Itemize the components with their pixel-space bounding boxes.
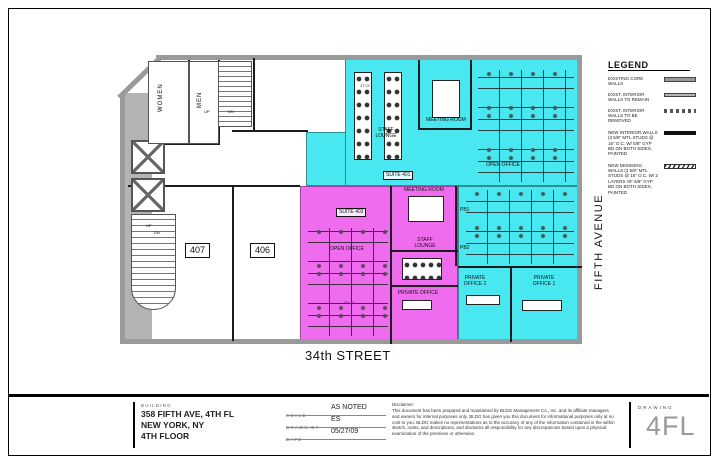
address-line-2: NEW YORK, NY xyxy=(141,420,234,431)
label-pink-meeting-room: MEETING ROOM xyxy=(404,188,444,194)
desk-bank-cyan-bottom xyxy=(466,190,574,264)
partition-corridor-top xyxy=(232,130,308,132)
legend-item-label: EXIST. INTERIOR WALLS TO REMAIN xyxy=(608,92,658,103)
label-suite-401: SUITE 401 xyxy=(383,171,413,180)
disclaimer: Disclaimer: This document has been prepa… xyxy=(392,402,617,437)
legend-title: LEGEND xyxy=(608,60,690,71)
partition-pb xyxy=(455,186,457,266)
label-women: WOMEN xyxy=(158,72,165,124)
label-cyan-staff-lounge: STAFF LOUNGE xyxy=(372,128,400,140)
label-room-406: 406 xyxy=(250,243,275,258)
desk-private-office-1 xyxy=(522,300,562,311)
drawing-number: 4FL xyxy=(646,411,696,442)
partition-stair-right xyxy=(253,58,255,132)
label-pb2: PB2 xyxy=(460,246,469,252)
legend-swatch-new-demising xyxy=(664,164,696,169)
label-cyan-open-office: OPEN OFFICE xyxy=(486,163,516,169)
title-block: BUILDING 358 FIFTH AVE, 4TH FL NEW YORK,… xyxy=(0,398,719,454)
partition-cyan-meeting-btm xyxy=(418,128,472,130)
table-cyan-meeting xyxy=(432,80,460,118)
building-address: 358 FIFTH AVE, 4TH FL NEW YORK, NY 4TH F… xyxy=(141,409,234,442)
building-label: BUILDING xyxy=(141,403,172,408)
partition-pink-h1 xyxy=(390,250,458,252)
label-dn-curved: DN xyxy=(154,231,160,236)
legend-item: EXISTING CORE WALLS xyxy=(608,76,696,87)
wall-right xyxy=(577,55,582,344)
legend-item: EXIST. INTERIOR WALLS TO REMAIN xyxy=(608,92,696,103)
title-block-bar-left xyxy=(133,402,135,448)
scale-section: SCALE AS NOTED DRAWN BY ES DATE 05/27/09 xyxy=(286,404,386,440)
label-dn-top: DN xyxy=(228,110,234,115)
label-room-407: 407 xyxy=(185,243,210,258)
label-private-office-1: PRIVATE OFFICE 1 xyxy=(528,276,560,288)
partition-pink-vert xyxy=(390,186,392,344)
table-pink-lounge xyxy=(402,258,442,280)
street-label-fifth-avenue: FIFTH AVENUE xyxy=(593,150,605,290)
street-label-34th: 34th STREET xyxy=(305,348,391,363)
restroom-women xyxy=(148,61,189,144)
drawing-label: DRAWING xyxy=(638,405,674,410)
drawn-by-value: ES xyxy=(331,416,340,423)
table-cyan-lounge-2 xyxy=(384,72,402,160)
address-line-3: 4TH FLOOR xyxy=(141,431,234,442)
label-up-top: UP xyxy=(204,110,210,115)
label-pink-staff-lounge: STAFF LOUNGE xyxy=(412,238,438,250)
desk-bank-pink xyxy=(308,228,388,336)
suite-401-zone-entry xyxy=(306,132,346,186)
dim-open-office: 22'-4" xyxy=(344,300,354,305)
partition-pink-h2 xyxy=(390,285,458,287)
elevator-1 xyxy=(131,140,165,174)
label-suite-403: SUITE 403 xyxy=(336,208,366,217)
title-block-divider xyxy=(9,394,709,397)
legend-item-label: NEW DEMISING WALLS (3 5/8" MTL STUDS @ 1… xyxy=(608,163,658,195)
desk-private-office-pink xyxy=(402,300,432,310)
label-up-curved: UP xyxy=(146,224,152,229)
label-pb1: PB1 xyxy=(460,208,469,214)
elevator-2 xyxy=(131,178,165,212)
title-block-bar-right xyxy=(629,402,631,448)
partition-407-406 xyxy=(232,186,234,341)
label-cyan-meeting-room: MEETING ROOM xyxy=(424,118,468,124)
wall-left xyxy=(120,93,125,344)
legend-item: NEW DEMISING WALLS (3 5/8" MTL STUDS @ 1… xyxy=(608,163,696,195)
legend-item-label: EXISTING CORE WALLS xyxy=(608,76,658,87)
legend-swatch-walls-removed xyxy=(664,109,696,113)
table-pink-meeting xyxy=(408,196,444,222)
legend-item-label: NEW INTERIOR WALLS (3 5/8" MTL STUDS @ 1… xyxy=(608,130,658,157)
legend-item: EXIST. INTERIOR WALLS TO BE REMOVED xyxy=(608,108,696,124)
desk-private-office-2 xyxy=(466,295,500,305)
address-line-1: 358 FIFTH AVE, 4TH FL xyxy=(141,409,234,420)
legend-swatch-existing-core xyxy=(664,77,696,82)
partition-cyan-lounge xyxy=(418,60,420,130)
partition-cyan-meeting xyxy=(470,60,472,130)
date-value: 05/27/09 xyxy=(331,428,358,435)
label-private-office-2: PRIVATE OFFICE 2 xyxy=(460,276,490,288)
label-pink-private-office: PRIVATE OFFICE xyxy=(396,291,440,297)
partition-cyan-po-top xyxy=(458,266,582,268)
partition-cyan-po-mid xyxy=(510,268,512,342)
legend-swatch-new-interior xyxy=(664,131,696,135)
disclaimer-text: This document has been prepared and main… xyxy=(392,408,617,437)
label-men: MEN xyxy=(197,82,204,118)
dim-staff-lounge: 17'-0" xyxy=(360,83,370,88)
label-pink-open-office: OPEN OFFICE xyxy=(330,247,364,253)
legend: LEGEND EXISTING CORE WALLS EXIST. INTERI… xyxy=(608,60,700,195)
wall-bottom xyxy=(120,339,582,344)
legend-swatch-walls-remain xyxy=(664,93,696,97)
legend-item: NEW INTERIOR WALLS (3 5/8" MTL STUDS @ 1… xyxy=(608,130,696,157)
legend-item-label: EXIST. INTERIOR WALLS TO BE REMOVED xyxy=(608,108,658,124)
restroom-men xyxy=(189,61,219,144)
scale-value: AS NOTED xyxy=(331,404,367,411)
stairs-curved xyxy=(131,214,176,310)
